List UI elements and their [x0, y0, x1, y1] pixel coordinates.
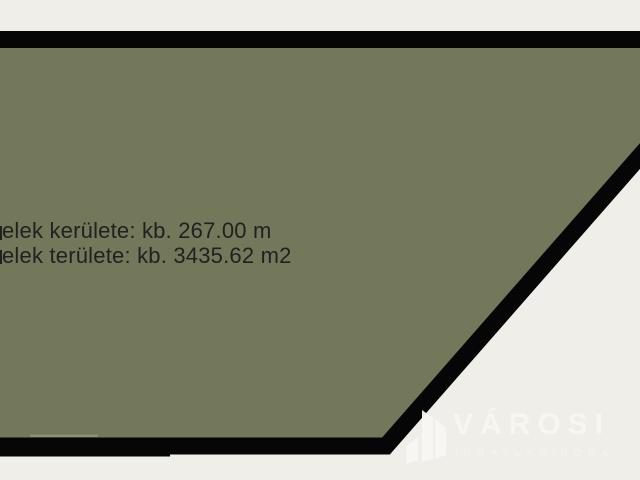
agency-watermark: VÁROSI INGATLANIRODA	[403, 398, 638, 480]
area-label: elek területe: kb. 3435.62 m2	[2, 244, 292, 269]
clipped-letter-artifact	[0, 250, 2, 264]
measurement-labels: elek kerülete: kb. 267.00 m elek terület…	[2, 219, 292, 268]
watermark-subtitle: INGATLANIRODA	[455, 449, 614, 459]
boundary-artifact-line	[30, 435, 98, 437]
building-icon	[403, 398, 453, 468]
watermark-title: VÁROSI	[453, 410, 610, 440]
clipped-letter-artifact	[0, 226, 2, 240]
border-step	[0, 446, 170, 457]
perimeter-label: elek kerülete: kb. 267.00 m	[2, 219, 292, 244]
plot-sketch-canvas: elek kerülete: kb. 267.00 m elek terület…	[0, 0, 640, 480]
